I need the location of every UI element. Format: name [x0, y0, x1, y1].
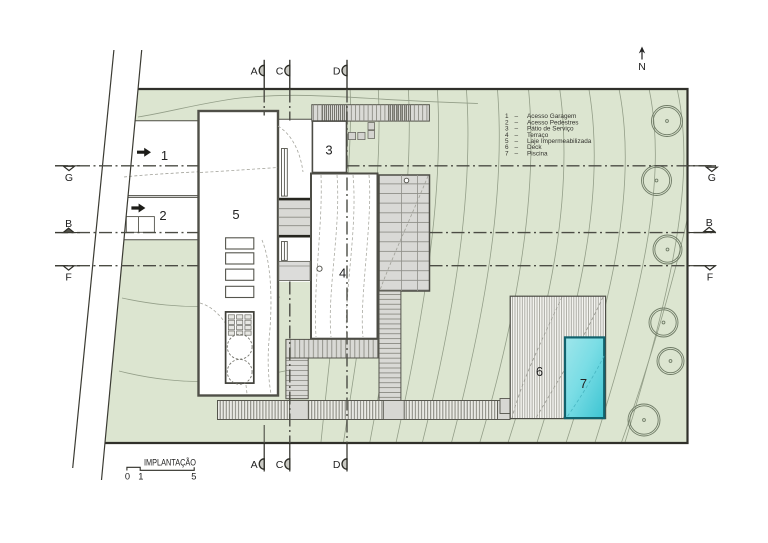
svg-text:1: 1: [161, 148, 168, 163]
svg-text:7: 7: [505, 150, 509, 157]
svg-text:F: F: [707, 272, 713, 284]
svg-text:B: B: [706, 217, 713, 229]
svg-text:D: D: [333, 66, 341, 78]
svg-text:F: F: [65, 272, 71, 284]
svg-text:Piscina: Piscina: [527, 150, 548, 157]
svg-text:G: G: [65, 172, 73, 184]
svg-text:–: –: [515, 150, 519, 157]
svg-text:0: 0: [125, 472, 130, 482]
svg-text:A: A: [251, 459, 258, 471]
svg-text:1: 1: [138, 472, 143, 482]
svg-text:5: 5: [232, 207, 239, 222]
svg-text:N: N: [638, 61, 646, 73]
svg-text:7: 7: [580, 376, 587, 391]
svg-text:3: 3: [325, 143, 332, 158]
svg-text:IMPLANTAÇÃO: IMPLANTAÇÃO: [144, 458, 196, 468]
svg-text:C: C: [276, 66, 284, 78]
svg-text:G: G: [708, 172, 716, 184]
svg-text:C: C: [276, 459, 284, 471]
svg-text:5: 5: [191, 472, 196, 482]
svg-text:A: A: [251, 66, 258, 78]
svg-text:B: B: [65, 218, 72, 230]
svg-text:6: 6: [536, 364, 543, 379]
svg-text:2: 2: [159, 208, 166, 223]
svg-text:D: D: [333, 459, 341, 471]
svg-text:4: 4: [339, 266, 346, 281]
